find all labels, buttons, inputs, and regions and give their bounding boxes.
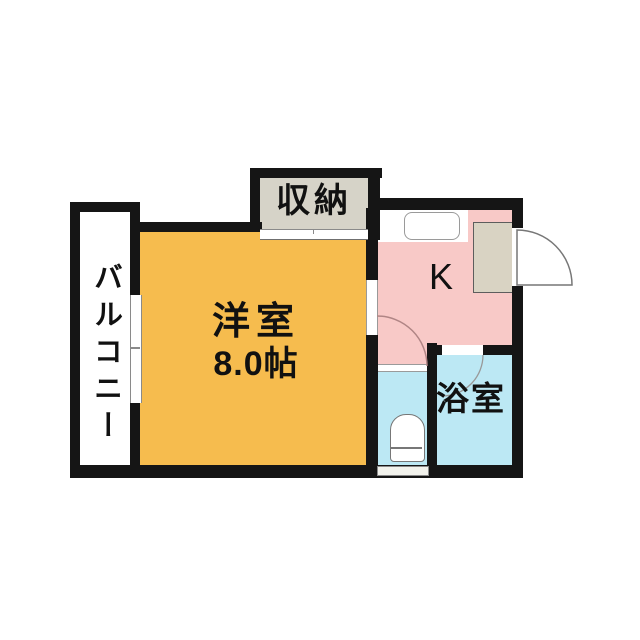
balcony-label: バルコニー [90,238,120,470]
bathroom-label: 浴室 [430,382,512,417]
floorplan-canvas: 収納 バルコニー 洋室 8.0帖 K 浴室 [0,0,640,640]
closet-label: 収納 [252,184,376,220]
kitchen-label: K [426,258,456,296]
western-room-size: 8.0帖 [170,347,342,383]
entrance-door-swing-icon [517,230,572,285]
room-door-swing-icon [377,316,427,366]
western-room-label: 洋室 [170,303,342,343]
